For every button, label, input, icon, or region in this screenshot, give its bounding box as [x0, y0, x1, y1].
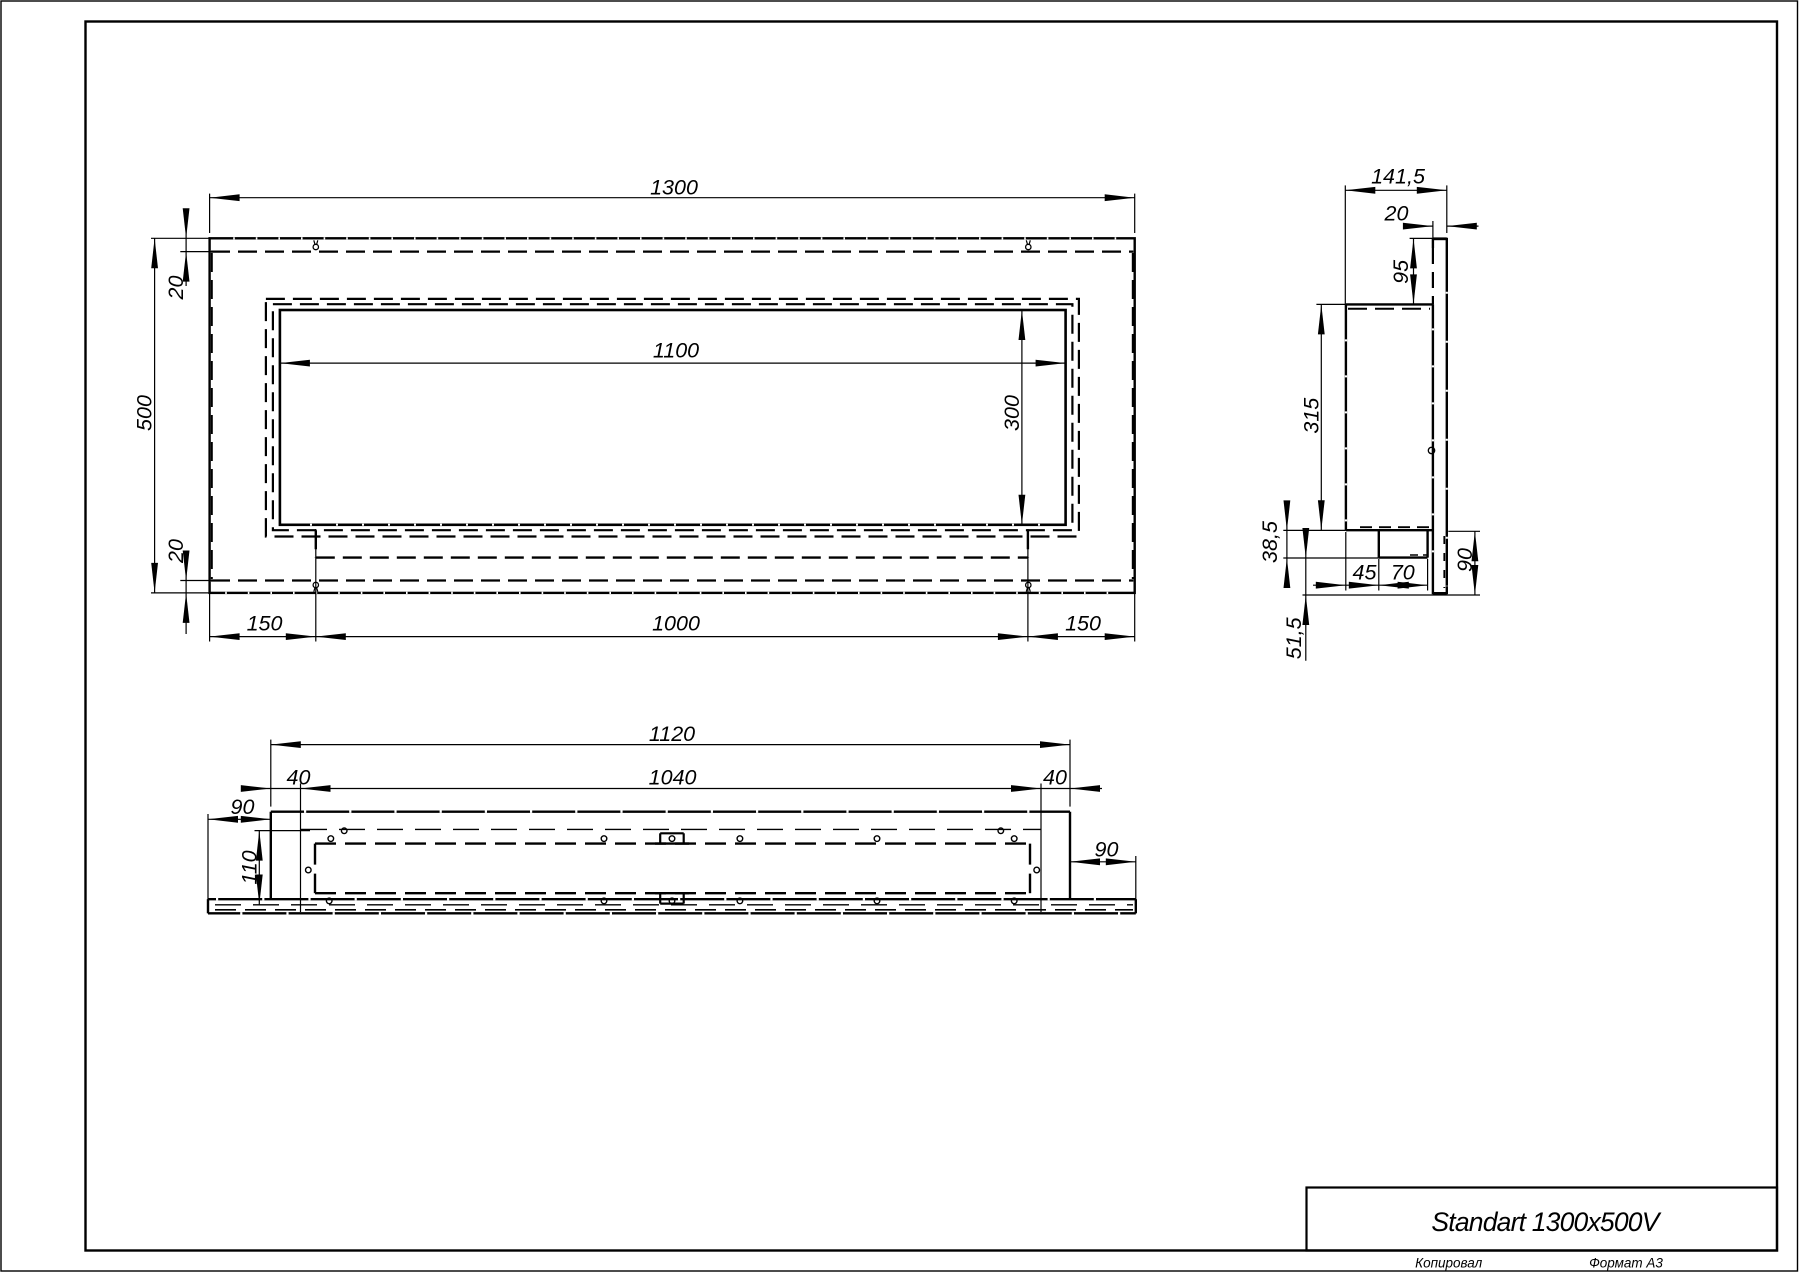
- svg-text:315: 315: [1299, 397, 1323, 434]
- svg-text:500: 500: [133, 395, 157, 431]
- svg-text:300: 300: [1000, 395, 1024, 431]
- svg-text:20: 20: [1384, 202, 1409, 226]
- svg-text:110: 110: [237, 850, 261, 884]
- svg-text:1100: 1100: [653, 339, 699, 363]
- svg-text:40: 40: [287, 766, 311, 790]
- svg-text:150: 150: [1065, 612, 1101, 636]
- svg-text:90: 90: [1453, 548, 1477, 572]
- svg-text:38,5: 38,5: [1258, 520, 1282, 563]
- svg-text:150: 150: [247, 612, 283, 636]
- svg-text:70: 70: [1391, 561, 1415, 585]
- svg-text:90: 90: [1095, 837, 1119, 861]
- svg-text:40: 40: [1043, 766, 1067, 790]
- svg-text:45: 45: [1353, 561, 1378, 585]
- svg-text:1000: 1000: [652, 612, 700, 636]
- svg-text:141,5: 141,5: [1371, 164, 1426, 188]
- svg-text:90: 90: [231, 795, 255, 819]
- svg-text:51,5: 51,5: [1282, 616, 1306, 659]
- svg-text:20: 20: [164, 276, 188, 301]
- svg-text:1300: 1300: [650, 176, 698, 200]
- svg-text:Формат А3: Формат А3: [1589, 1256, 1663, 1271]
- svg-text:1120: 1120: [649, 722, 695, 746]
- svg-text:1040: 1040: [649, 766, 697, 790]
- svg-text:95: 95: [1389, 259, 1413, 284]
- svg-text:Standart 1300x500V: Standart 1300x500V: [1431, 1207, 1661, 1237]
- svg-text:Копировал: Копировал: [1415, 1256, 1483, 1271]
- svg-text:20: 20: [164, 539, 188, 564]
